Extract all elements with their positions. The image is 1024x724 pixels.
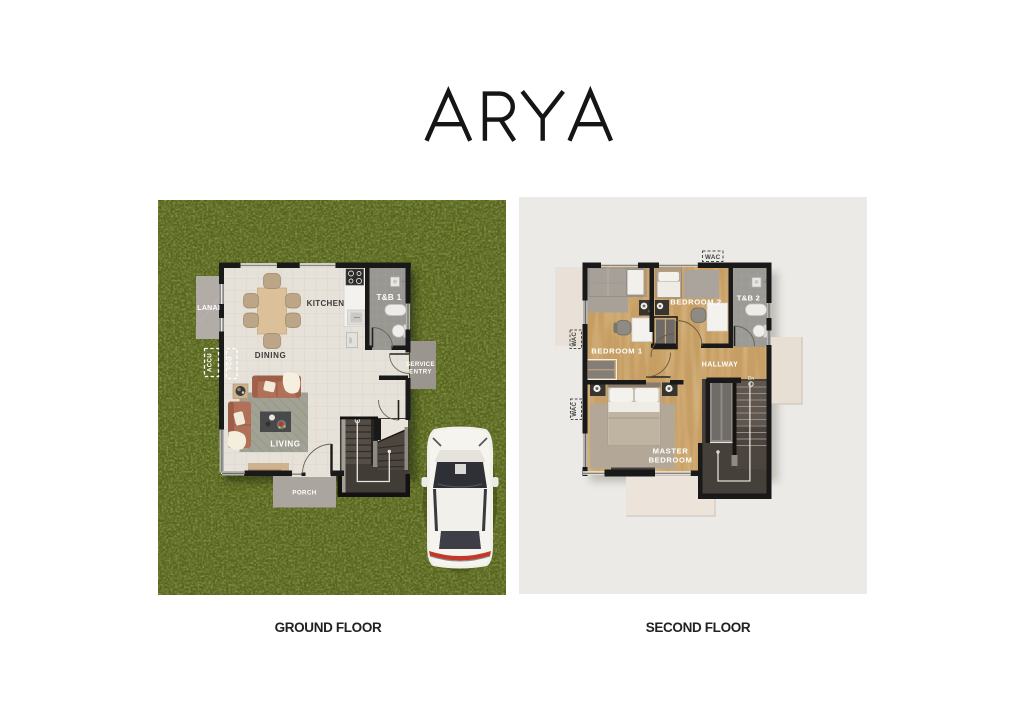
svg-text:REF: REF <box>349 337 353 343</box>
svg-text:Dn: Dn <box>748 376 755 382</box>
svg-text:BEDROOM: BEDROOM <box>649 456 693 465</box>
svg-text:FCU: FCU <box>228 356 234 369</box>
svg-text:KITCHEN: KITCHEN <box>307 299 345 308</box>
svg-text:T&B 2: T&B 2 <box>737 294 760 303</box>
svg-text:WAC: WAC <box>572 402 578 417</box>
svg-text:LANAI: LANAI <box>197 305 220 312</box>
svg-text:BEDROOM 1: BEDROOM 1 <box>591 347 643 356</box>
svg-text:WAC: WAC <box>572 332 578 347</box>
svg-text:SERVICE: SERVICE <box>406 361 435 368</box>
svg-text:HALLWAY: HALLWAY <box>702 362 738 369</box>
svg-text:PORCH: PORCH <box>292 490 316 497</box>
svg-text:WAC: WAC <box>705 254 721 261</box>
svg-text:ENTRY: ENTRY <box>409 369 432 376</box>
svg-text:ACCU: ACCU <box>208 353 214 372</box>
svg-text:DINING: DINING <box>255 351 287 360</box>
svg-text:T&B 1: T&B 1 <box>376 293 401 302</box>
svg-text:BEDROOM 2: BEDROOM 2 <box>670 298 721 307</box>
svg-text:MASTER: MASTER <box>653 447 689 456</box>
svg-text:LIVING: LIVING <box>270 440 300 449</box>
